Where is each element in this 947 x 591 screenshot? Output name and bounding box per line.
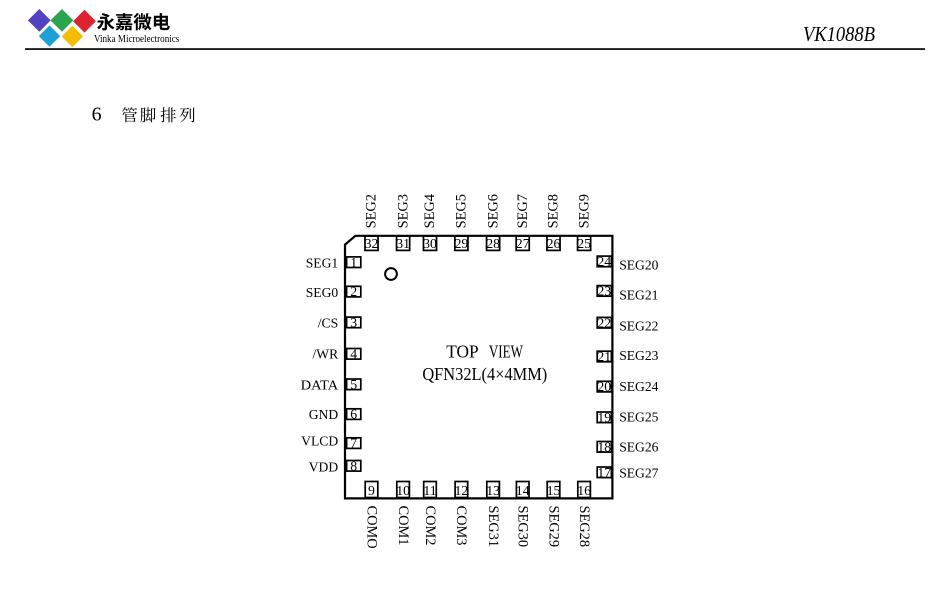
svg-text:SEG21: SEG21: [619, 288, 658, 303]
svg-text:SEG27: SEG27: [619, 465, 658, 480]
svg-text:22: 22: [597, 315, 611, 330]
svg-text:SEG3: SEG3: [395, 194, 411, 228]
svg-text:SEG20: SEG20: [619, 257, 658, 272]
svg-text:SEG6: SEG6: [485, 194, 501, 228]
svg-text:SEG7: SEG7: [515, 194, 531, 228]
svg-text:COMO: COMO: [363, 506, 379, 549]
svg-text:SEG22: SEG22: [619, 319, 658, 334]
svg-text:DATA: DATA: [301, 377, 339, 392]
svg-text:QFN32L(4×4MM): QFN32L(4×4MM): [422, 364, 547, 385]
svg-text:COM2: COM2: [422, 506, 438, 546]
svg-text:SEG23: SEG23: [619, 348, 658, 363]
svg-text:SEG29: SEG29: [545, 506, 561, 548]
svg-text:15: 15: [547, 483, 561, 498]
svg-text:10: 10: [396, 483, 410, 498]
svg-text:4: 4: [350, 346, 357, 361]
svg-text:31: 31: [396, 236, 410, 251]
svg-text:/WR: /WR: [313, 347, 340, 362]
svg-text:16: 16: [577, 483, 591, 498]
svg-text:6: 6: [350, 407, 357, 422]
svg-text:6: 6: [92, 104, 102, 126]
svg-text:SEG5: SEG5: [454, 194, 470, 228]
svg-text:SEG9: SEG9: [576, 194, 592, 228]
svg-text:VIEW: VIEW: [489, 342, 523, 362]
svg-text:11: 11: [423, 483, 436, 498]
svg-text:1: 1: [350, 255, 357, 270]
svg-text:VK1088B: VK1088B: [803, 22, 875, 46]
svg-text:SEG26: SEG26: [619, 440, 658, 455]
svg-text:SEG25: SEG25: [619, 410, 658, 425]
svg-text:SEG4: SEG4: [422, 194, 438, 228]
svg-text:28: 28: [486, 236, 500, 251]
svg-text:25: 25: [577, 236, 591, 251]
svg-text:SEG28: SEG28: [576, 506, 592, 548]
svg-text:8: 8: [350, 458, 357, 473]
svg-text:SEG8: SEG8: [546, 194, 562, 228]
svg-text:7: 7: [350, 436, 357, 451]
svg-text:2: 2: [350, 284, 357, 299]
svg-text:SEG30: SEG30: [515, 506, 531, 548]
svg-text:SEG1: SEG1: [306, 256, 338, 271]
svg-text:GND: GND: [309, 407, 339, 422]
svg-text:26: 26: [547, 236, 561, 251]
svg-text:20: 20: [597, 379, 611, 394]
svg-text:COM3: COM3: [453, 506, 469, 546]
svg-text:27: 27: [516, 236, 530, 251]
svg-text:5: 5: [350, 377, 357, 392]
svg-text:13: 13: [486, 483, 500, 498]
svg-text:19: 19: [597, 410, 611, 425]
svg-text:3: 3: [350, 315, 357, 330]
svg-text:Vinka Microelectronics: Vinka Microelectronics: [94, 33, 179, 45]
svg-text:9: 9: [368, 483, 375, 498]
svg-text:SEG24: SEG24: [619, 379, 658, 394]
svg-text:12: 12: [455, 483, 469, 498]
svg-text:VDD: VDD: [309, 459, 339, 474]
svg-text:VLCD: VLCD: [301, 433, 338, 448]
svg-text:SEG31: SEG31: [485, 506, 501, 548]
svg-text:23: 23: [597, 284, 611, 299]
svg-text:SEG0: SEG0: [306, 285, 339, 300]
svg-text:17: 17: [597, 465, 611, 480]
svg-text:30: 30: [423, 236, 437, 251]
svg-text:24: 24: [597, 254, 611, 269]
svg-text:/CS: /CS: [318, 316, 338, 331]
svg-text:29: 29: [455, 236, 469, 251]
svg-text:COM1: COM1: [395, 506, 411, 546]
svg-text:14: 14: [516, 483, 530, 498]
svg-text:SEG2: SEG2: [364, 194, 380, 228]
svg-text:21: 21: [597, 349, 611, 364]
svg-text:32: 32: [365, 236, 379, 251]
svg-text:18: 18: [597, 439, 611, 454]
svg-text:TOP: TOP: [446, 342, 478, 362]
